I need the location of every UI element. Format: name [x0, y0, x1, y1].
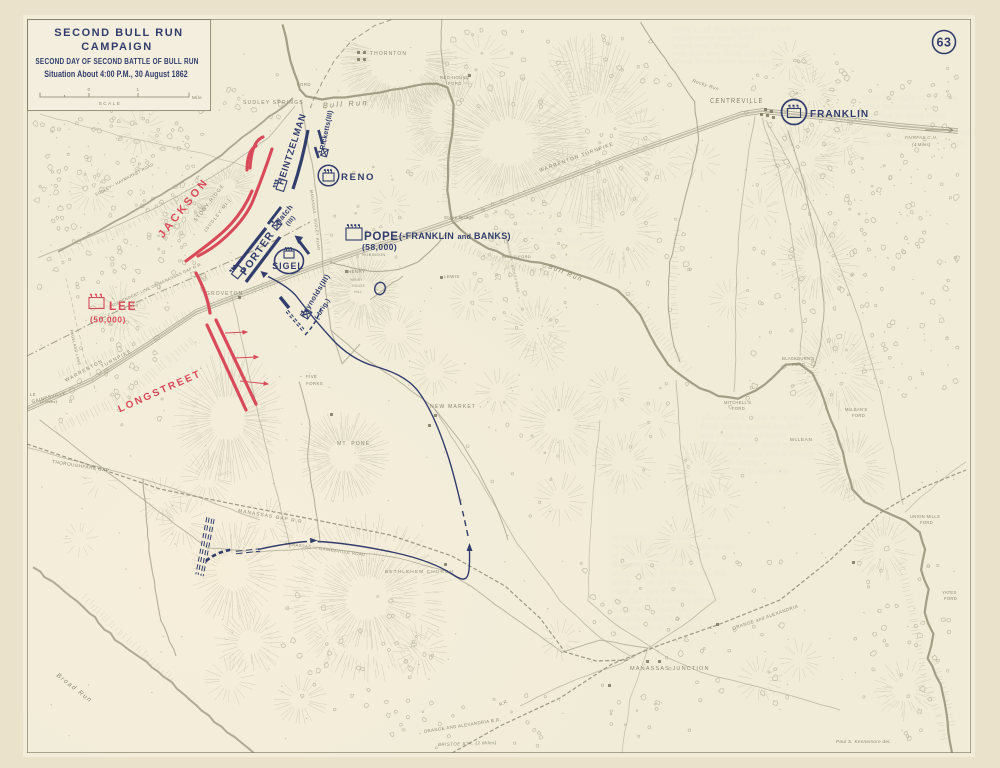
svg-text:SCALE: SCALE [99, 101, 122, 106]
svg-text:1: 1 [137, 87, 140, 92]
svg-text:of army upon had attack: of army upon had attack [612, 622, 705, 633]
svg-text:CAMPAIGN: CAMPAIGN [81, 41, 152, 53]
svg-text:SIGEL: SIGEL [272, 261, 303, 271]
svg-text:Paul S. Kennemore del.: Paul S. Kennemore del. [836, 739, 891, 744]
svg-text:LEWIS: LEWIS [444, 274, 460, 279]
svg-text:HILL: HILL [354, 290, 362, 294]
svg-text:this left corps road army at: this left corps road army at [490, 262, 592, 273]
svg-text:FORKS: FORKS [306, 381, 323, 386]
svg-text:FORD: FORD [297, 82, 311, 87]
svg-text:0: 0 [88, 87, 91, 92]
svg-text:(-FRANKLIN: (-FRANKLIN [399, 231, 454, 241]
svg-text:FAIRFAX C.H.: FAIRFAX C.H. [905, 135, 938, 140]
svg-text:SECOND DAY OF SECOND BATTLE OF: SECOND DAY OF SECOND BATTLE OF BULL RUN [35, 56, 198, 66]
svg-text:FORD: FORD [448, 81, 462, 86]
svg-text:RED HOUSE: RED HOUSE [440, 75, 469, 80]
svg-text:BANKS): BANKS) [474, 231, 511, 241]
svg-text:LEE: LEE [109, 299, 137, 313]
svg-text:BALL'S FORD: BALL'S FORD [502, 254, 531, 259]
svg-text:THORNTON: THORNTON [370, 51, 407, 57]
svg-text:Mile: Mile [192, 95, 202, 100]
svg-text:HOUSE: HOUSE [352, 284, 366, 288]
svg-text:and: and [458, 232, 472, 241]
svg-text:HENRY: HENRY [350, 278, 363, 282]
svg-text:CENTREVILLE: CENTREVILLE [710, 98, 764, 106]
svg-text:McLEAN: McLEAN [790, 437, 813, 443]
svg-text:(58,000): (58,000) [362, 242, 397, 252]
svg-text:FORD: FORD [944, 596, 957, 601]
svg-text:ROBINSON: ROBINSON [362, 252, 386, 257]
svg-text:MT. PONE: MT. PONE [337, 441, 370, 447]
svg-text:HENRY: HENRY [348, 269, 365, 274]
svg-text:FORD: FORD [732, 406, 745, 411]
svg-text:when from army were upon moved: when from army were upon moved [672, 56, 806, 67]
svg-text:SECOND BULL RUN: SECOND BULL RUN [54, 27, 183, 39]
svg-text:YATES: YATES [942, 590, 957, 595]
svg-text:63: 63 [937, 36, 952, 50]
svg-text:upon of that to was line: upon of that to was line [700, 466, 789, 477]
svg-text:FIVE: FIVE [306, 374, 317, 379]
svg-text:RENO: RENO [341, 172, 375, 183]
svg-text:MITCHELL'S: MITCHELL'S [724, 400, 751, 405]
svg-text:UNION MILLS: UNION MILLS [910, 514, 940, 519]
svg-text:NEW MARKET: NEW MARKET [430, 404, 476, 410]
svg-text:FORD: FORD [792, 362, 805, 367]
svg-text:BLACKBURN'S: BLACKBURN'S [782, 356, 815, 361]
svg-text:(50,000): (50,000) [90, 315, 126, 325]
svg-text:MANASSAS JUNCTION: MANASSAS JUNCTION [630, 666, 710, 672]
svg-text:SUDLEY SPRINGS: SUDLEY SPRINGS [243, 100, 304, 106]
svg-text:FRANKLIN: FRANKLIN [810, 109, 869, 120]
svg-text:(4 Miles): (4 Miles) [912, 142, 931, 147]
svg-text:GROVETON: GROVETON [206, 291, 243, 297]
svg-text:FORD: FORD [920, 520, 933, 525]
svg-text:FORD: FORD [852, 413, 865, 418]
svg-text:LE: LE [30, 392, 36, 397]
svg-text:Stone Bridge: Stone Bridge [444, 215, 474, 220]
svg-text:McLEAN'S: McLEAN'S [845, 407, 868, 412]
svg-text:Situation About 4:00 P.M., 30: Situation About 4:00 P.M., 30 August 186… [44, 69, 188, 79]
